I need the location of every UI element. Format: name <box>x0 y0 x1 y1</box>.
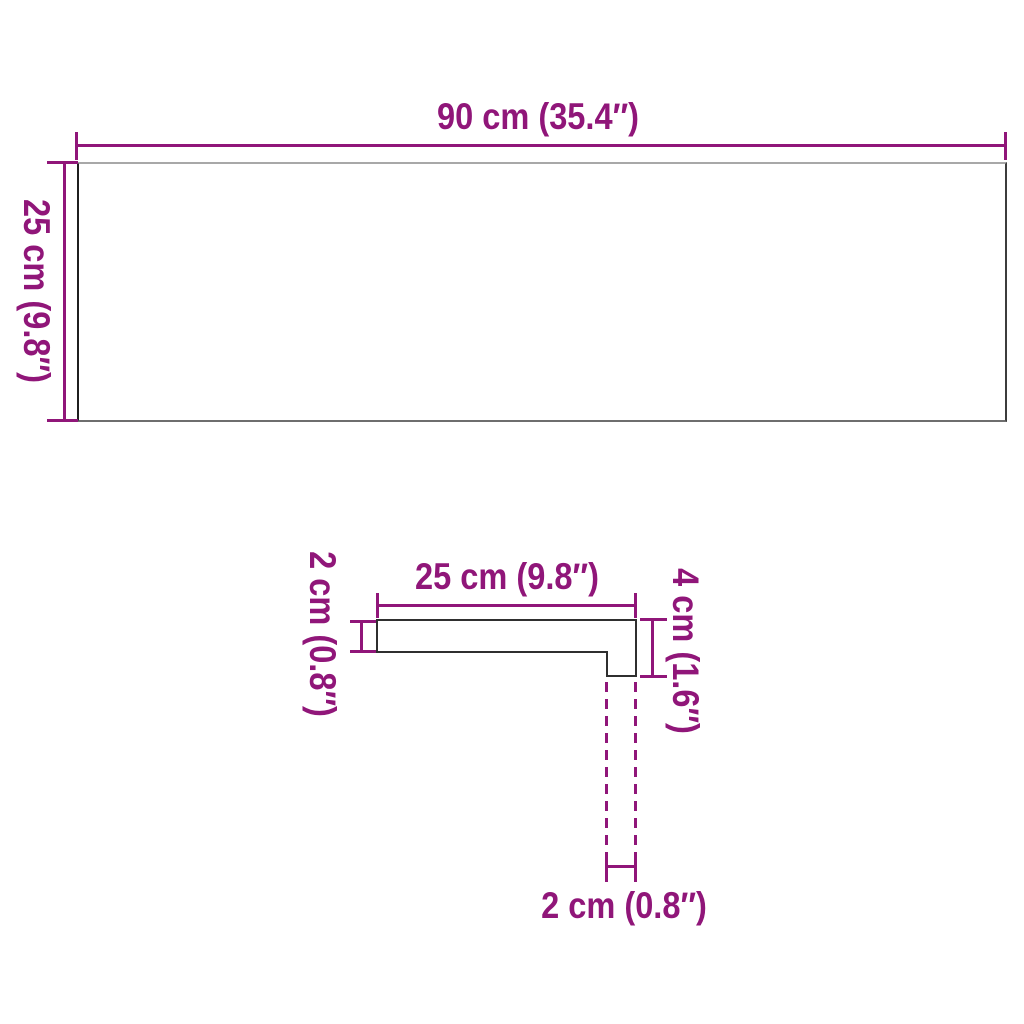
profile-height-label: 4 cm (1.6″) <box>664 568 706 734</box>
profile-thickness-dimension-line <box>360 621 363 652</box>
profile-width-tick-left <box>376 593 379 618</box>
dimension-diagram: 90 cm (35.4″) 25 cm (9.8″) 25 cm (9.8″) … <box>0 0 1024 1024</box>
profile-outline-shape <box>376 619 638 678</box>
top-depth-tick-top <box>47 161 78 164</box>
top-width-label: 90 cm (35.4″) <box>437 96 639 138</box>
profile-height-tick-bottom <box>640 675 667 678</box>
nose-extension-line-left <box>605 682 608 854</box>
top-width-tick-right <box>1004 132 1007 160</box>
top-depth-tick-bottom <box>47 419 78 422</box>
profile-height-tick-top <box>640 618 667 621</box>
top-depth-dimension-line <box>63 162 66 421</box>
top-width-dimension-line <box>77 144 1007 147</box>
profile-thickness-label: 2 cm (0.8″) <box>301 551 343 717</box>
profile-width-label: 25 cm (9.8″) <box>415 556 599 598</box>
profile-thickness-tick-bottom <box>350 650 376 653</box>
nose-width-dimension-line <box>605 865 637 868</box>
top-view-panel-rectangle <box>77 162 1007 422</box>
nose-extension-line-right <box>634 682 637 854</box>
profile-height-dimension-line <box>651 619 654 678</box>
profile-width-tick-right <box>634 593 637 618</box>
profile-width-dimension-line <box>378 604 637 607</box>
nose-width-label: 2 cm (0.8″) <box>541 885 707 927</box>
top-depth-label: 25 cm (9.8″) <box>15 199 57 383</box>
profile-thickness-tick-top <box>350 620 376 623</box>
top-width-tick-left <box>75 132 78 160</box>
